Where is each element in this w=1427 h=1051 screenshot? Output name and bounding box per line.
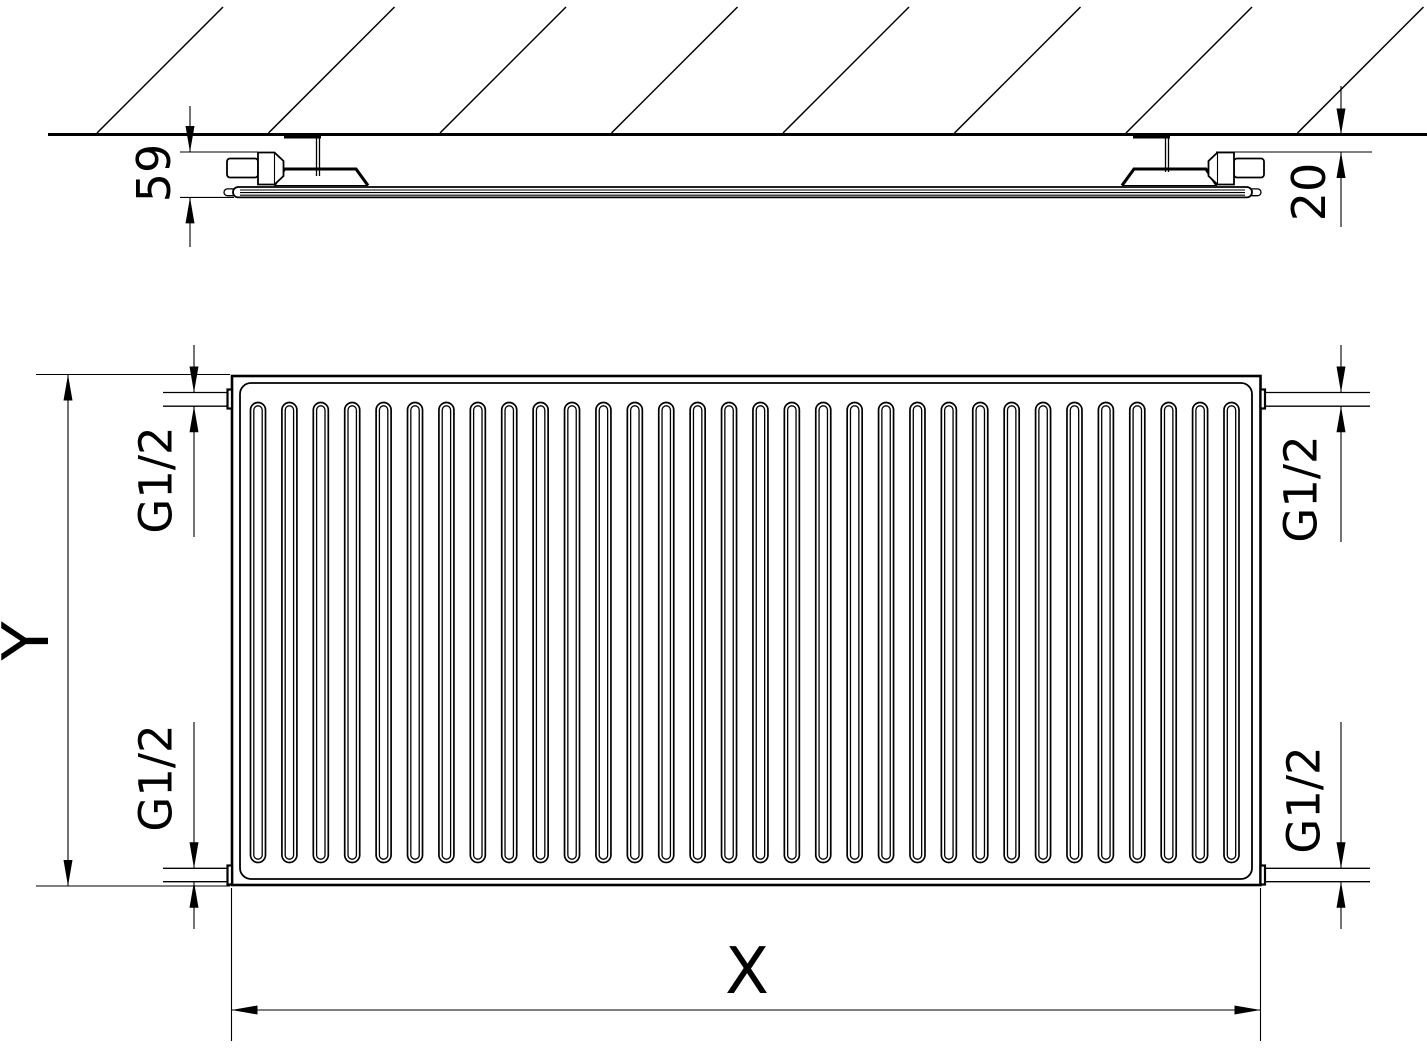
- hatch-line: [783, 7, 909, 133]
- dimension-width: X: [232, 888, 1261, 1041]
- channel-outer: [376, 403, 391, 863]
- channel-outer: [1098, 403, 1113, 863]
- channel-outer: [847, 403, 862, 863]
- channel-outer: [753, 403, 768, 863]
- hatch-line: [440, 7, 566, 133]
- height-dimension-label: Y: [0, 621, 64, 662]
- connection-label-bottom-left: G1/2: [130, 724, 183, 831]
- wall-hatching: [97, 7, 1424, 133]
- union-fitting-right: [1209, 153, 1265, 185]
- hatch-line: [1126, 7, 1252, 133]
- dimension-wall-distance: 20: [1216, 86, 1372, 227]
- front-view: G1/2 G1/2 G1/2 G1/2: [0, 345, 1370, 1041]
- channel-outer: [659, 403, 674, 863]
- connection-label-top-left: G1/2: [130, 426, 183, 533]
- channel-outer: [1036, 403, 1051, 863]
- dimension-connection-bottom-left: G1/2: [130, 722, 199, 929]
- channel-outer: [470, 403, 485, 863]
- channel-outer: [627, 403, 642, 863]
- section-view: 59 20: [48, 7, 1427, 247]
- wall-distance-dimension-label: 20: [1282, 163, 1336, 222]
- connection-label-top-right: G1/2: [1275, 435, 1328, 542]
- hatch-line: [612, 7, 738, 133]
- channel-outer: [345, 403, 360, 863]
- dimension-connection-bottom-right: G1/2: [1278, 722, 1346, 929]
- channel-outer: [973, 403, 988, 863]
- channel-outer: [879, 403, 894, 863]
- width-dimension-label: X: [725, 935, 769, 1009]
- channel-outer: [565, 403, 580, 863]
- channel-outer: [941, 403, 956, 863]
- mounting-bracket-right: [1122, 169, 1217, 186]
- channel-outer: [784, 403, 799, 863]
- connection-label-bottom-right: G1/2: [1278, 746, 1331, 853]
- channel-outer: [408, 403, 423, 863]
- channel-outer: [910, 403, 925, 863]
- radiator-panel-section: [224, 187, 1261, 197]
- channel-outer: [533, 403, 548, 863]
- channel-outer: [1067, 403, 1082, 863]
- channel-outer: [439, 403, 454, 863]
- union-fitting-left: [227, 153, 284, 185]
- radiator-drawing: 59 20: [0, 0, 1427, 1051]
- channel-outer: [722, 403, 737, 863]
- dimension-connection-top-left: G1/2: [130, 345, 199, 537]
- dimension-height: Y: [0, 375, 230, 887]
- connection-stub-bottom-left: [163, 866, 232, 885]
- channel-outer: [1130, 403, 1145, 863]
- connection-stub-bottom-right: [1261, 866, 1371, 885]
- hatch-line: [955, 7, 1081, 133]
- connection-stub-top-right: [1261, 390, 1371, 409]
- channel-outer: [282, 403, 297, 863]
- channel-outer: [1224, 403, 1239, 863]
- channel-outer: [690, 403, 705, 863]
- channel-outer: [251, 403, 266, 863]
- channel-outer: [1161, 403, 1176, 863]
- channel-outer: [816, 403, 831, 863]
- drawing-canvas: 59 20: [0, 0, 1427, 1051]
- dimension-connection-top-right: G1/2: [1275, 345, 1346, 543]
- hatch-line: [269, 7, 395, 133]
- hatch-line: [97, 7, 223, 133]
- channel-outer: [1004, 403, 1019, 863]
- channel-outer: [1193, 403, 1208, 863]
- wall-anchor-right: [1133, 137, 1170, 172]
- mounting-bracket-left: [274, 169, 368, 186]
- channel-outer: [313, 403, 328, 863]
- channel-outer: [596, 403, 611, 863]
- depth-dimension-label: 59: [127, 144, 181, 203]
- channel-outer: [502, 403, 517, 863]
- hatch-line: [1298, 7, 1424, 133]
- connection-stub-top-left: [163, 390, 232, 409]
